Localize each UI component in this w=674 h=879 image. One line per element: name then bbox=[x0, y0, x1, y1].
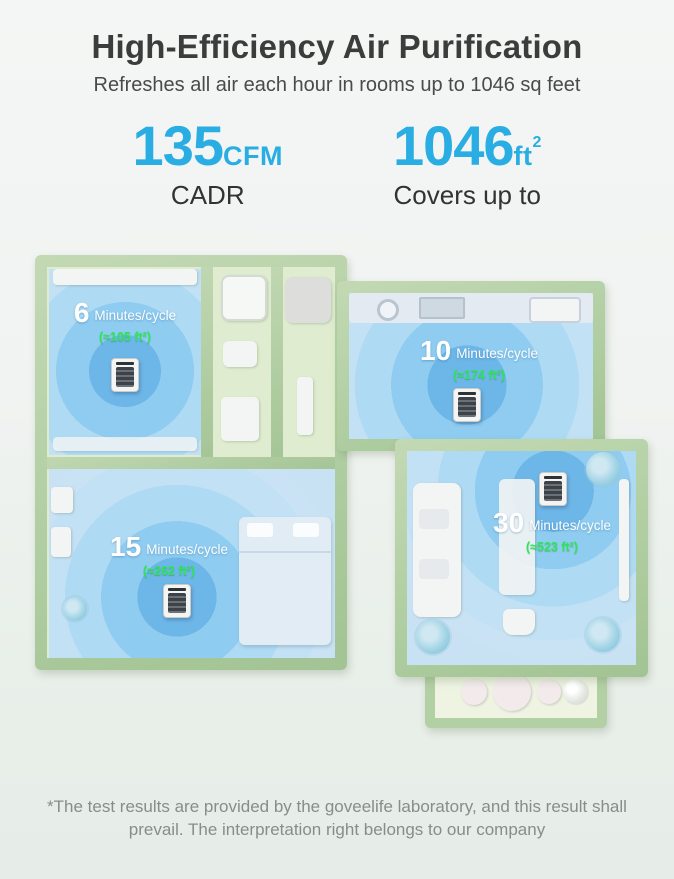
purifier-panel bbox=[168, 588, 186, 591]
purifier-grille bbox=[458, 397, 476, 417]
shower-icon bbox=[221, 275, 267, 321]
plant-icon bbox=[586, 618, 620, 652]
room-area-text: (≈262 ft²) bbox=[69, 564, 269, 578]
room-living-room: 30Minutes/cycle (≈523 ft²) bbox=[407, 451, 636, 665]
plant-icon bbox=[586, 452, 620, 486]
prep-sink-icon bbox=[529, 297, 581, 323]
minutes-unit: Minutes/cycle bbox=[456, 346, 538, 361]
page-title: High-Efficiency Air Purification bbox=[0, 28, 674, 66]
room-label-living-room: 30Minutes/cycle (≈523 ft²) bbox=[467, 507, 636, 554]
sofa-cushion bbox=[419, 509, 449, 529]
stat-coverage: 1046ft2 Covers up to bbox=[393, 118, 541, 211]
cadr-number: 135 bbox=[133, 114, 223, 177]
room-kitchen: 10Minutes/cycle (≈174 ft²) bbox=[349, 293, 593, 439]
kitchen-sink-icon bbox=[377, 299, 399, 321]
toilet-icon bbox=[51, 487, 73, 513]
hallway bbox=[283, 269, 335, 455]
coverage-unit: ft bbox=[514, 141, 533, 171]
kitchen-counter bbox=[349, 293, 593, 323]
minutes-value: 6 bbox=[74, 297, 90, 328]
purifier-panel bbox=[544, 476, 562, 479]
stat-cadr-value: 135CFM bbox=[133, 118, 283, 174]
purifier-grille bbox=[168, 593, 186, 613]
stat-coverage-value: 1046ft2 bbox=[393, 118, 541, 174]
pillow-icon bbox=[293, 523, 319, 537]
room-master-bedroom: 15Minutes/cycle (≈262 ft²) bbox=[49, 469, 335, 658]
page-subtitle: Refreshes all air each hour in rooms up … bbox=[0, 74, 674, 97]
left-wing-floor: 6Minutes/cycle (≈105 ft²) bbox=[47, 267, 335, 658]
air-purifier-icon bbox=[111, 358, 139, 392]
room-small-bedroom: 6Minutes/cycle (≈105 ft²) bbox=[49, 269, 201, 455]
minutes-unit: Minutes/cycle bbox=[529, 518, 611, 533]
plant-icon bbox=[416, 620, 450, 654]
minutes-value: 30 bbox=[493, 507, 524, 538]
floorplan-kitchen-wing: 10Minutes/cycle (≈174 ft²) bbox=[337, 281, 605, 451]
purifier-grille bbox=[116, 367, 134, 387]
room-label-master-bedroom: 15Minutes/cycle (≈262 ft²) bbox=[69, 531, 269, 578]
wall-segment bbox=[47, 457, 335, 469]
disclaimer-text: *The test results are provided by the go… bbox=[37, 796, 637, 842]
coverage-label: Covers up to bbox=[393, 180, 541, 211]
sink-cabinet-icon bbox=[51, 527, 71, 557]
coverage-superscript: 2 bbox=[533, 134, 542, 151]
minutes-unit: Minutes/cycle bbox=[146, 542, 228, 557]
air-purifier-icon bbox=[163, 584, 191, 618]
cabinet-icon bbox=[285, 277, 331, 323]
flower-icon bbox=[563, 679, 589, 705]
minutes-unit: Minutes/cycle bbox=[94, 308, 176, 323]
patio-seat-icon bbox=[461, 679, 487, 705]
purifier-panel bbox=[458, 392, 476, 395]
room-area-text: (≈174 ft²) bbox=[379, 368, 579, 382]
radiator-icon bbox=[297, 377, 313, 435]
purifier-grille bbox=[544, 481, 562, 501]
toilet-icon bbox=[223, 341, 257, 367]
air-purifier-icon bbox=[539, 472, 567, 506]
sofa-icon bbox=[413, 483, 461, 617]
cadr-label: CADR bbox=[133, 180, 283, 211]
air-purifier-icon bbox=[453, 388, 481, 422]
room-area-text: (≈523 ft²) bbox=[467, 540, 636, 554]
sofa-cushion bbox=[419, 559, 449, 579]
floorplan-living-wing: 30Minutes/cycle (≈523 ft²) bbox=[395, 439, 648, 677]
stat-cadr: 135CFM CADR bbox=[133, 118, 283, 211]
stove-icon bbox=[419, 297, 465, 319]
room-label-small-bedroom: 6Minutes/cycle (≈105 ft²) bbox=[49, 297, 201, 344]
plant-icon bbox=[63, 597, 87, 621]
cadr-unit: CFM bbox=[223, 141, 283, 171]
room-label-kitchen: 10Minutes/cycle (≈174 ft²) bbox=[379, 335, 579, 382]
room-area-text: (≈105 ft²) bbox=[49, 330, 201, 344]
minutes-value: 10 bbox=[420, 335, 451, 366]
patio-table-icon bbox=[493, 673, 531, 711]
coverage-number: 1046 bbox=[393, 114, 514, 177]
rug bbox=[53, 437, 197, 451]
wall-segment bbox=[271, 267, 283, 457]
patio-seat-icon bbox=[537, 680, 561, 704]
purifier-panel bbox=[116, 362, 134, 365]
minutes-value: 15 bbox=[110, 531, 141, 562]
wall-segment bbox=[201, 267, 213, 457]
chair-icon bbox=[503, 609, 535, 635]
window-strip bbox=[53, 269, 197, 285]
floorplan-left-wing: 6Minutes/cycle (≈105 ft²) bbox=[35, 255, 347, 670]
sink-cabinet-icon bbox=[221, 397, 259, 441]
floorplan: 6Minutes/cycle (≈105 ft²) bbox=[35, 253, 648, 713]
stats-row: 135CFM CADR 1046ft2 Covers up to bbox=[0, 118, 674, 211]
room-bathroom bbox=[213, 269, 271, 455]
